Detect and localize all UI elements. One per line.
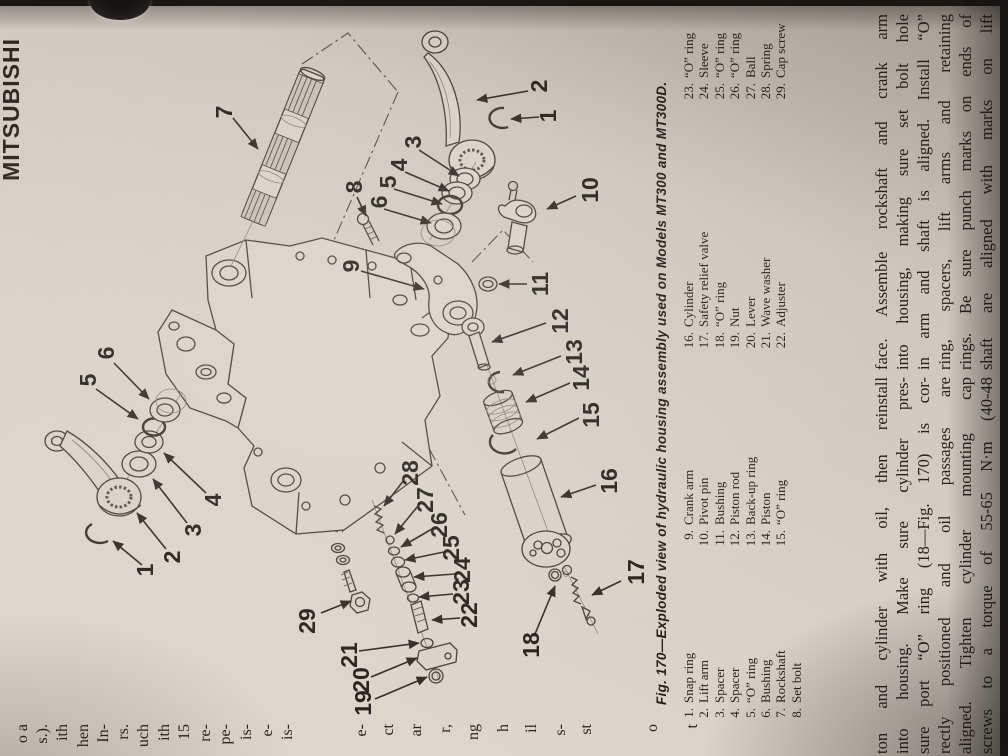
legend-item-number: 6. [758, 708, 773, 748]
body-text-line: face. Assemble rockshaft and crank arm [871, 14, 892, 370]
legend-item-number: 29. [773, 83, 788, 123]
legend-item: 25.“O” ring [712, 23, 727, 123]
legend-item-number: 9. [681, 530, 696, 570]
legend-item-number: 16. [681, 332, 696, 372]
legend-item: 13.Back-up ring [743, 457, 758, 570]
diagram-callout-number: 20 [348, 667, 374, 693]
legend-column-2: 9.Crank arm10.Pivot pin11.Bushing12.Pist… [681, 457, 789, 570]
legend-item-label: Cylinder [681, 282, 696, 333]
legend-item: 29.Cap screw [773, 23, 788, 123]
legend-item-label: Piston rod [727, 472, 742, 530]
legend-item-label: Rockshaft [773, 650, 788, 708]
legend-item: 2.Lift arm [696, 650, 711, 748]
diagram-callout-number: 2 [159, 551, 185, 564]
legend-item-number: 5. [743, 708, 758, 748]
diagram-callout-number: 3 [400, 136, 426, 149]
legend-item-number: 15. [773, 530, 788, 570]
diagram-callout-number: 13 [561, 339, 587, 365]
diagram-callout-number: 12 [547, 308, 573, 334]
legend-item: 8.Set bolt [789, 650, 804, 748]
body-text-line: into housing, making sure set bolt hole [892, 14, 913, 370]
legend-item-number: 21. [758, 332, 773, 372]
legend-item-number: 14. [758, 530, 773, 570]
diagram-callout-number: 18 [518, 632, 544, 658]
legend-item-number: 8. [789, 708, 804, 748]
legend-item-number: 12. [727, 530, 742, 570]
body-text-line: ton and cylinder with oil, then reinstal… [871, 377, 892, 754]
legend-item: 18.“O” ring [712, 232, 727, 372]
legend-item: 22.Adjuster [773, 232, 788, 372]
diagram-callout-number: 6 [93, 347, 119, 360]
diagram-callout-number: 3 [180, 524, 206, 537]
legend-item: 10.Pivot pin [696, 457, 711, 570]
body-text-line: sure port “O” ring (18—Fig. 170) is cor- [913, 377, 934, 754]
diagram-callout-number: 10 [577, 177, 603, 203]
legend-item-number: 28. [758, 83, 773, 123]
legend-item-number: 10. [696, 530, 711, 570]
legend-item-label: Cap screw [773, 23, 788, 83]
diagram-callout-number: 22 [456, 602, 482, 628]
legend-item: 16.Cylinder [681, 232, 696, 372]
legend-item: 27.Ball [743, 23, 758, 123]
diagram-callout-number: 16 [596, 468, 622, 494]
diagram-callout-number: 4 [386, 158, 412, 171]
legend-item-number: 1. [681, 708, 696, 748]
diagram-callout-number: 26 [426, 512, 452, 538]
legend-item-number: 3. [712, 708, 727, 748]
body-text-line: into housing. Make sure cylinder pres- [892, 377, 913, 754]
legend-column-4: 23.“O” ring24.Sleeve25.“O” ring26.“O” ri… [681, 23, 789, 123]
legend-column-3: 16.Cylinder17.Safety relief valve18.“O” … [681, 232, 789, 372]
legend-item-number: 20. [743, 332, 758, 372]
legend-item-number: 18. [712, 332, 727, 372]
diagram-callout-number: 6 [366, 196, 392, 209]
legend-item-label: Lift arm [696, 660, 711, 708]
legend-item-number: 13. [743, 530, 758, 570]
legend-item: 11.Bushing [712, 457, 727, 570]
legend-item: 14.Piston [758, 457, 773, 570]
legend-item-number: 27. [743, 83, 758, 123]
legend-item-number: 4. [727, 708, 742, 748]
legend-item: 28.Spring [758, 23, 773, 123]
legend-item: 19.Nut [727, 232, 742, 372]
legend-item-label: Set bolt [789, 663, 804, 708]
legend-item: 6.Bushing [758, 650, 773, 748]
figure-caption: Fig. 170—Exploded view of hydraulic hous… [654, 25, 669, 705]
diagram-callout-number: 28 [397, 460, 423, 486]
diagram-callout-number: 17 [623, 559, 649, 585]
body-text-line: in arm and shaft is aligned. Install “O” [913, 14, 934, 370]
legend-column-1: 1.Snap ring2.Lift arm3.Spacer4.Spacer5.“… [681, 650, 804, 748]
legend-item: 3.Spacer [712, 650, 727, 748]
body-text-line: rings. Be sure punch marks on ends of [955, 14, 976, 370]
legend-item-label: “O” ring [727, 33, 742, 83]
body-text-line: rectly positioned and oil passages are [934, 377, 955, 754]
legend-item-label: Bushing [758, 660, 773, 708]
legend-item-label: Adjuster [773, 282, 788, 332]
legend-item-label: Ball [743, 56, 758, 83]
legend-item: 26.“O” ring [727, 23, 742, 123]
body-text-line: ring, spacers, lift arms and retaining [934, 14, 955, 370]
legend-item-label: Spacer [727, 668, 742, 708]
legend-item-label: “O” ring [712, 33, 727, 83]
legend-item: 1.Snap ring [681, 650, 696, 748]
diagram-callout-number: 1 [132, 563, 158, 576]
legend-item: 23.“O” ring [681, 23, 696, 123]
legend-item-label: Sleeve [696, 43, 711, 83]
legend-item-number: 7. [773, 708, 788, 748]
diagram-callout-number: 2 [526, 80, 552, 93]
legend-item-number: 19. [727, 332, 742, 372]
diagram-callout-number: 7 [211, 106, 237, 119]
legend-item: 17.Safety relief valve [696, 232, 711, 372]
legend-item: 24.Sleeve [696, 23, 711, 123]
legend-item-number: 2. [696, 708, 711, 748]
body-text-line: aligned. Tighten cylinder mounting cap [955, 377, 976, 754]
body-column-right: face. Assemble rockshaft and crank armin… [871, 14, 997, 370]
diagram-callout-number: 27 [412, 487, 438, 513]
legend-item-label: Crank arm [681, 470, 696, 530]
diagram-callout-number: 14 [568, 365, 594, 391]
diagram-callout-number: 19 [350, 690, 376, 716]
legend-item-label: Nut [727, 308, 742, 333]
photo-of-manual-page: MITSUBISHI o as.).ithhenIn-rs.uchith15re… [0, 0, 1008, 756]
diagram-callout-number: 5 [75, 373, 101, 386]
diagram-callout-number: 29 [294, 608, 320, 634]
legend-item: 20.Lever [743, 232, 758, 372]
legend-item-label: Spring [758, 43, 773, 83]
legend-item-label: “O” ring [712, 282, 727, 332]
diagram-callout-number: 11 [527, 272, 553, 297]
manual-page: MITSUBISHI o as.).ithhenIn-rs.uchith15re… [0, 6, 1000, 756]
legend-item-label: Lever [743, 297, 758, 332]
legend-item-label: Snap ring [681, 653, 696, 708]
legend-item-label: Bushing [712, 482, 727, 530]
diagram-callout-number: 9 [338, 260, 364, 273]
legend-item: 9.Crank arm [681, 457, 696, 570]
legend-item: 21.Wave washer [758, 232, 773, 372]
body-text-line: screws to a torque of 55-65 N·m (40-48 [976, 377, 997, 754]
diagram-callout-number: 8 [341, 180, 367, 193]
legend-item: 12.Piston rod [727, 457, 742, 570]
legend-item: 15.“O” ring [773, 457, 788, 570]
diagram-callout-number: 1 [535, 109, 561, 122]
legend-item: 7.Rockshaft [773, 650, 788, 748]
legend-item-label: Piston [758, 492, 773, 530]
legend-item-number: 25. [712, 83, 727, 123]
diagram-callout-number: 4 [200, 493, 226, 506]
legend-item-number: 11. [712, 530, 727, 570]
legend-item-label: “O” ring [743, 658, 758, 708]
legend-item-number: 24. [696, 83, 711, 123]
diagram-callout-number: 25 [438, 535, 464, 561]
legend-item-label: “O” ring [681, 33, 696, 83]
legend-item-label: Safety relief valve [696, 232, 711, 332]
legend-item-number: 23. [681, 83, 696, 123]
legend-item-label: Back-up ring [743, 457, 758, 530]
legend-item-label: Spacer [712, 668, 727, 708]
legend-item-label: “O” ring [773, 480, 788, 530]
legend-item-label: Pivot pin [696, 478, 711, 530]
legend-item: 4.Spacer [727, 650, 742, 748]
exploded-diagram-icon: 7834562110911121314151617181920212223242… [0, 6, 1000, 756]
body-text-line: shaft are aligned with marks on lift [976, 14, 997, 370]
diagram-callout-number: 15 [578, 402, 604, 428]
legend-item-number: 22. [773, 332, 788, 372]
diagram-callout-number: 21 [336, 642, 362, 668]
body-column-left: ton and cylinder with oil, then reinstal… [871, 377, 997, 754]
legend-item: 5.“O” ring [743, 650, 758, 748]
legend-item-label: Wave washer [758, 258, 773, 332]
legend-item-number: 26. [727, 83, 742, 123]
legend-item-number: 17. [696, 332, 711, 372]
diagram-callout-number: 5 [375, 175, 401, 188]
